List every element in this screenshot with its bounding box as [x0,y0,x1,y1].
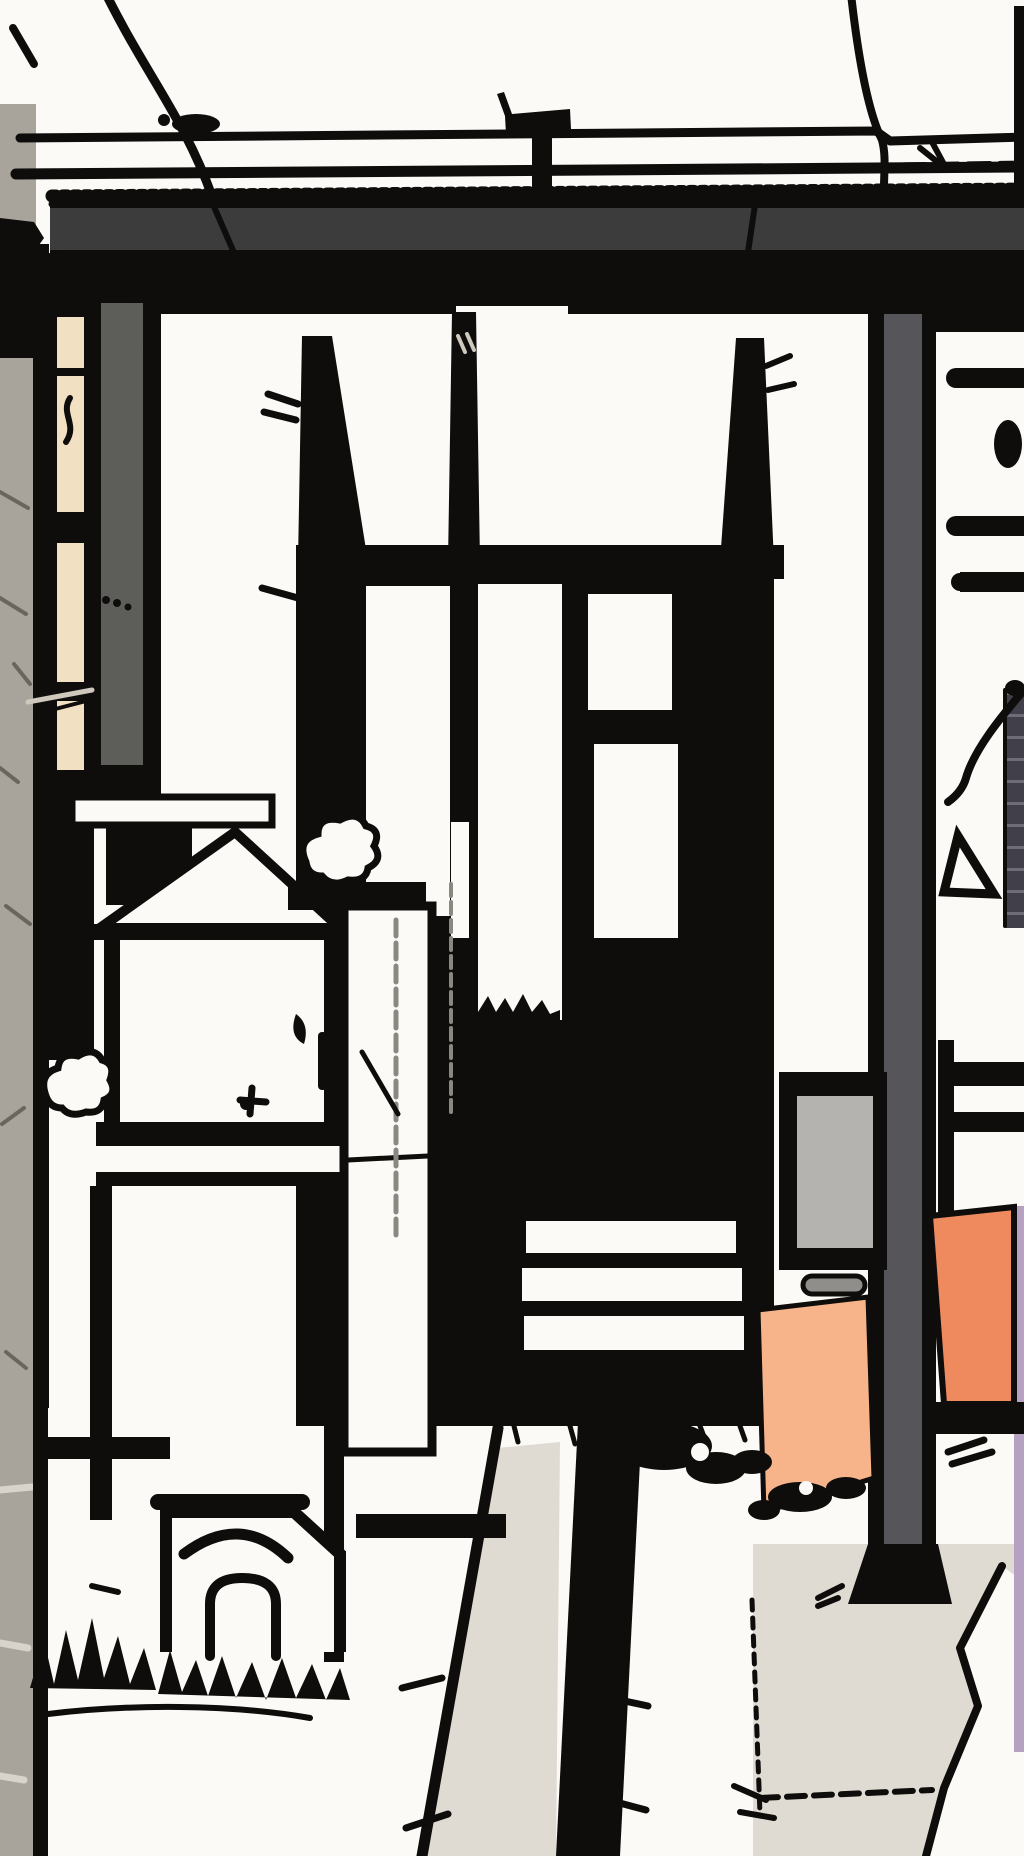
rung-3-tip [951,573,969,591]
hut-eave-bar [94,924,346,940]
gate-beam [50,189,1024,314]
rung-1-tip [946,368,966,388]
banner-frame-hbar-1 [938,1062,1024,1086]
lit-window-slit-3 [57,543,84,682]
wire-junction-dot [158,114,170,126]
orange-banner-cloth [930,1207,1014,1404]
rivet-dot-2 [113,599,121,607]
banner-frame-hbar-2 [938,1112,1024,1132]
fence-rung-3 [960,572,1024,592]
glass-pane-1 [366,586,450,916]
banner-bottom-blob-3 [826,1477,866,1499]
left-wall [0,104,36,1856]
step-slat-2 [522,1268,742,1301]
window-squiggle-mark [66,398,70,442]
ground-blob-3 [624,1420,652,1448]
hut-shelf-band-2 [96,1172,346,1186]
hut-foot-bar [48,1437,170,1459]
rivet-dot-3 [125,604,132,611]
pillar-body [884,314,922,1544]
post-gray-face [101,303,143,765]
glass-pane-4 [594,744,678,938]
illustration-canvas [0,0,1024,1856]
alley-scene [0,0,1024,1856]
hut-shelf-gap [96,1146,346,1172]
step-slat-1 [526,1221,736,1253]
lit-window-slit-4 [57,701,84,770]
pillar-edge-right [922,314,936,1544]
fence-rung-1 [956,368,1024,388]
sign-panel [797,1096,873,1248]
hut-blob-mark [240,1098,252,1110]
noren-banner-small [748,1297,874,1520]
cabinet-body [344,906,432,1452]
glass-pane-slit [451,822,469,938]
hut-leg-left [90,1186,112,1520]
hut-body [104,940,342,1122]
fence-top-rail [930,314,1024,332]
step-slat-3 [524,1316,744,1350]
hut-dash-mark [318,1032,327,1090]
glass-pane-2 [478,584,562,1020]
banner-bottom-bar [924,1402,1024,1434]
rung-2-tip [946,516,966,536]
banner-bottom-blob-2 [748,1500,780,1520]
hut-shelf-band-1 [96,1122,346,1146]
sign-roller [803,1276,865,1294]
cabinet-platform-bar [356,1514,506,1538]
lit-window-slit-1 [57,317,84,368]
ground-blob-4 [732,1450,772,1474]
beam-top-edge [50,192,1024,208]
banner-blob-highlight [799,1481,813,1495]
glass-pane-3 [588,594,672,710]
sign-board [779,1072,887,1294]
sidewalk-wedge [622,1438,753,1856]
ground-blob-highlight [691,1443,709,1461]
fence-rung-2 [956,516,1024,536]
right-edge-post [1014,6,1024,198]
fence-knob [994,420,1022,468]
wall-strip [0,104,36,1856]
hut-wall-right [324,940,342,1122]
offering-box [158,1502,340,1656]
rivet-dot-1 [102,596,110,604]
hut-back-panel [72,797,272,825]
post-lower-extension [36,788,94,1060]
beam-shadow-underside [50,250,1024,314]
door-lintel [296,545,784,579]
